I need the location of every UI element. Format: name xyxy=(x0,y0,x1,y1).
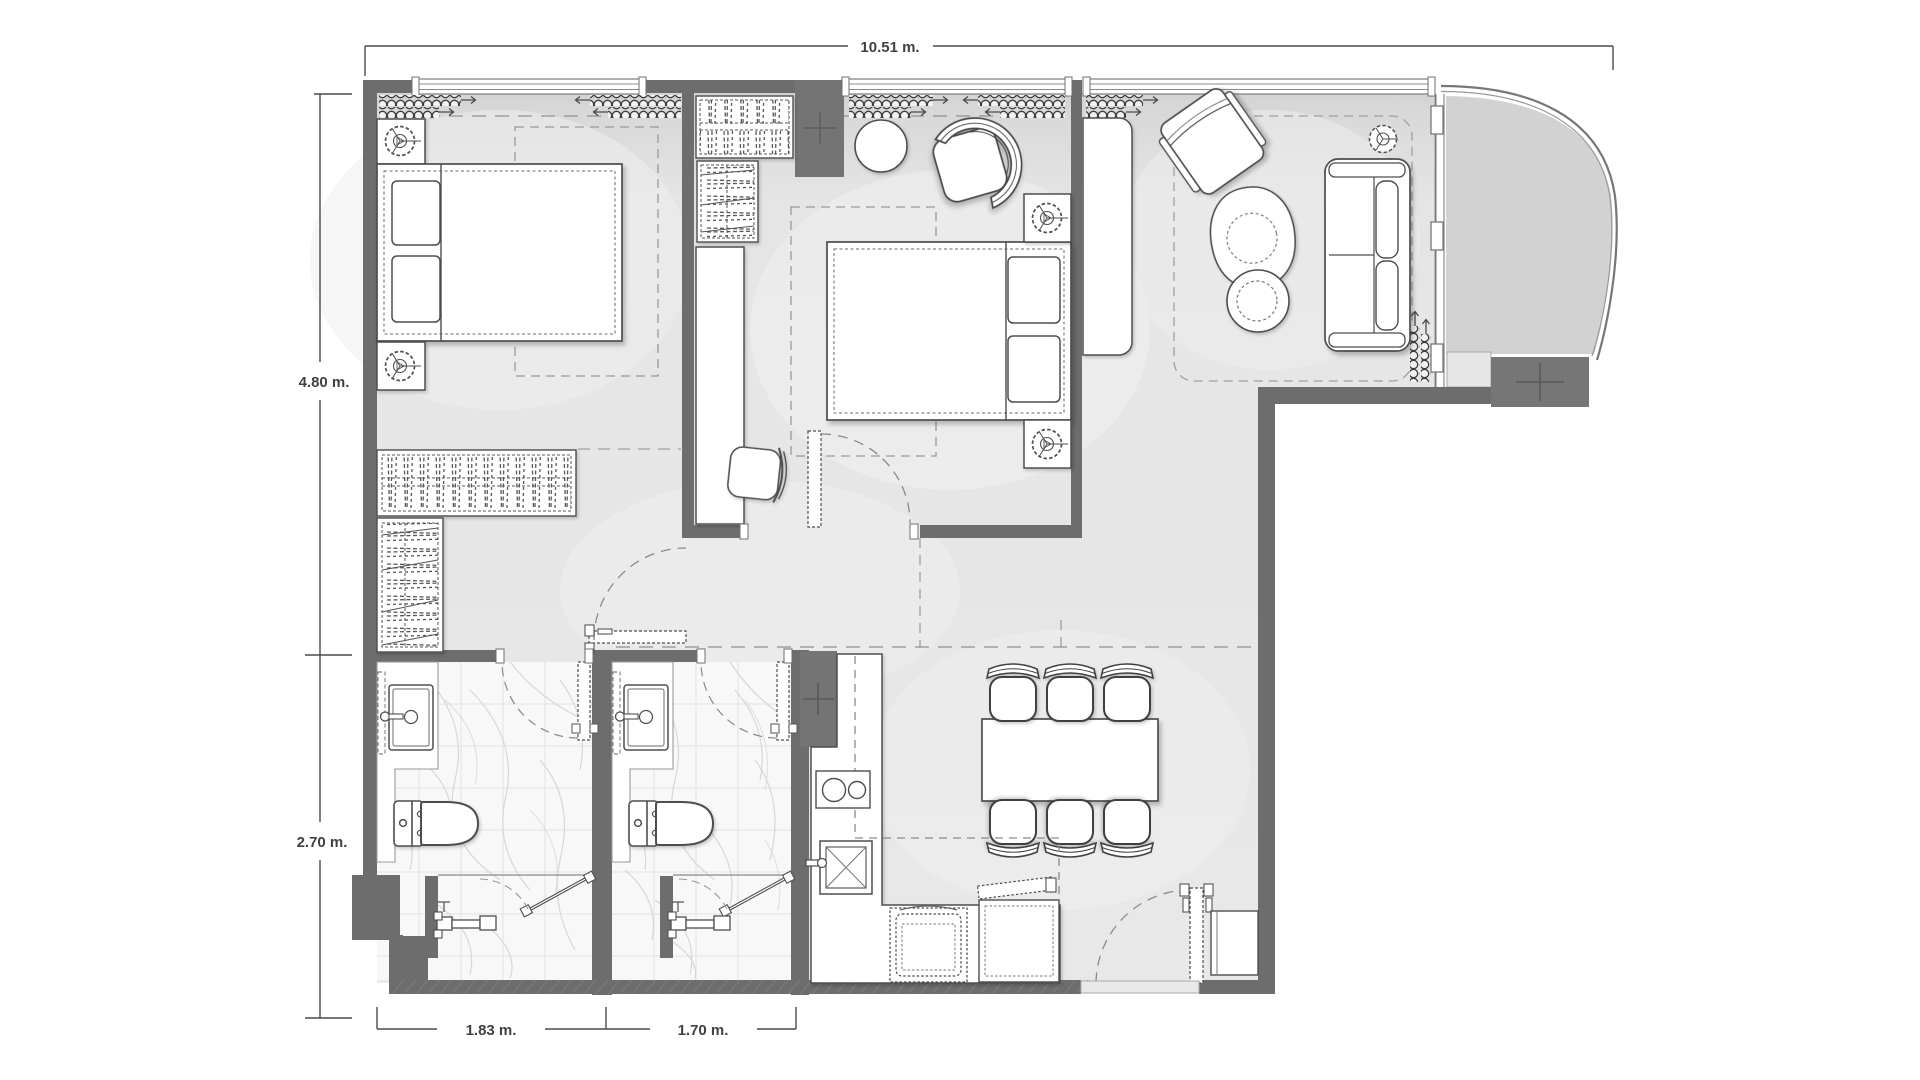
svg-text:1.70 m.: 1.70 m. xyxy=(678,1022,729,1039)
svg-text:1.83 m.: 1.83 m. xyxy=(466,1022,517,1039)
svg-text:10.51 m.: 10.51 m. xyxy=(860,39,919,56)
svg-text:4.80 m.: 4.80 m. xyxy=(299,374,350,391)
svg-text:2.70 m.: 2.70 m. xyxy=(297,834,348,851)
